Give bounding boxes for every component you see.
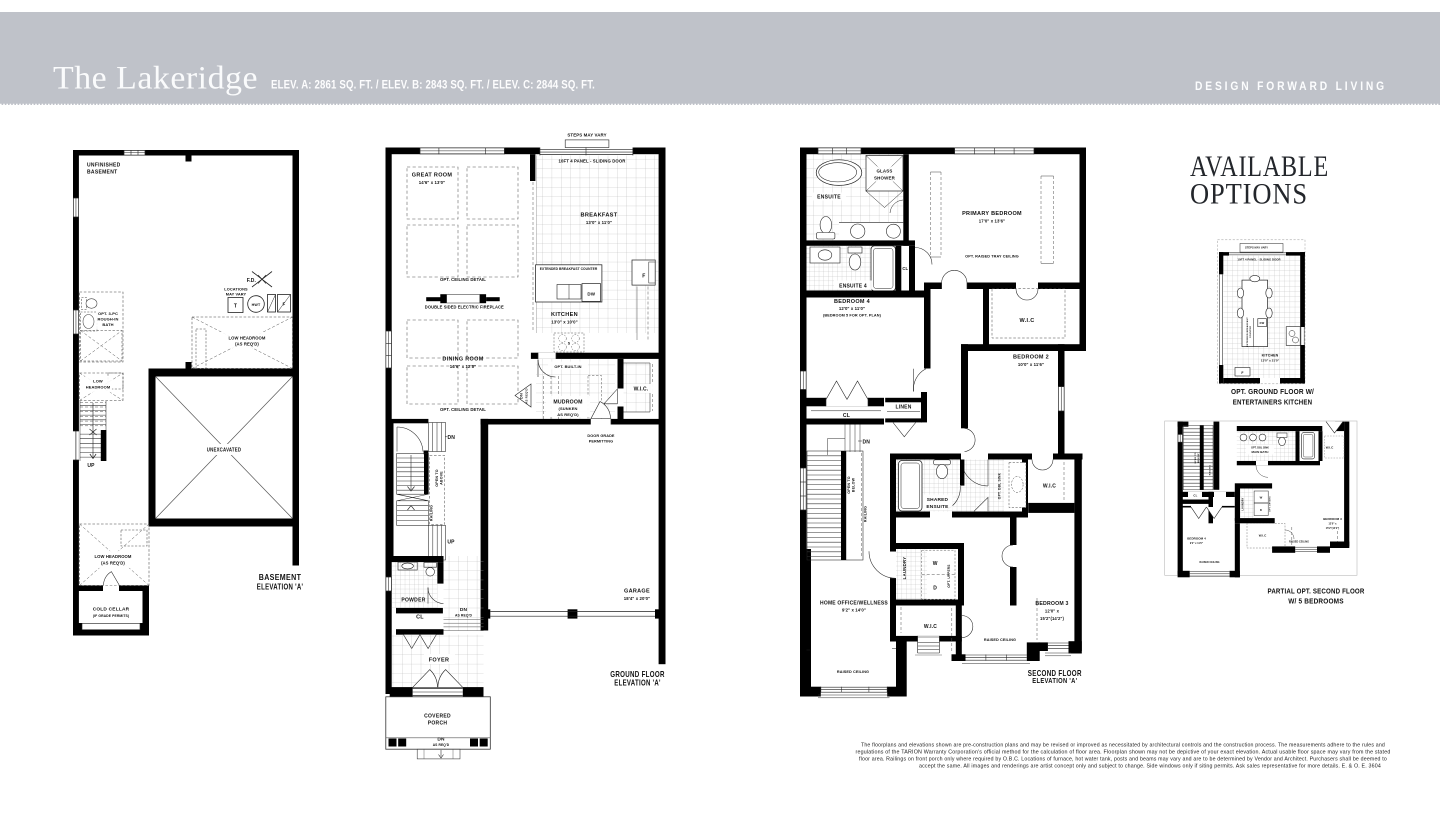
svg-text:DESIGN FORWARD LIVING: DESIGN FORWARD LIVING [1195, 81, 1387, 93]
svg-text:UP: UP [87, 463, 95, 469]
svg-text:ROUGH-IN: ROUGH-IN [97, 317, 118, 322]
svg-text:accept the same. All images an: accept the same. All images and renderin… [919, 764, 1381, 770]
svg-text:W.I.C.: W.I.C. [634, 387, 649, 393]
svg-text:12'0" x: 12'0" x [1045, 609, 1060, 614]
svg-text:STEPS MAY VARY: STEPS MAY VARY [567, 133, 606, 138]
svg-text:GLASS: GLASS [876, 169, 892, 174]
svg-text:13'0" x 11'0": 13'0" x 11'0" [586, 220, 612, 225]
svg-text:ELEV. A: 2861 SQ. FT. / ELEV.: ELEV. A: 2861 SQ. FT. / ELEV. B: 2843 SQ… [271, 80, 595, 92]
svg-text:HWT: HWT [252, 303, 261, 307]
svg-text:OPT. CEILING DETAIL: OPT. CEILING DETAIL [440, 407, 486, 412]
svg-text:F: F [642, 274, 645, 280]
svg-text:LAUNDRY: LAUNDRY [902, 557, 907, 580]
svg-text:POWDER: POWDER [401, 598, 425, 604]
svg-text:CL: CL [902, 266, 908, 271]
svg-text:HOME OFFICE/WELLNESS: HOME OFFICE/WELLNESS [820, 601, 888, 607]
svg-text:RAILING: RAILING [430, 505, 434, 521]
svg-text:MAY VARY: MAY VARY [226, 292, 247, 297]
svg-text:17'0" x 13'6": 17'0" x 13'6" [979, 219, 1006, 224]
svg-text:DW: DW [1260, 321, 1265, 325]
svg-text:OPEN TO: OPEN TO [847, 476, 851, 494]
svg-text:DN: DN [520, 393, 524, 399]
svg-text:OPT. UPPERS: OPT. UPPERS [947, 564, 951, 587]
svg-text:W.I.C: W.I.C [1020, 318, 1035, 324]
svg-text:W.I.C: W.I.C [1326, 446, 1334, 450]
svg-text:DN: DN [460, 607, 468, 613]
svg-text:KITCHEN: KITCHEN [551, 312, 578, 318]
svg-text:DW: DW [587, 292, 595, 297]
svg-text:BEDROOM 3: BEDROOM 3 [1323, 517, 1342, 521]
svg-text:ELEVATION 'A': ELEVATION 'A' [1032, 676, 1077, 685]
svg-text:PARTIAL OPT. SECOND FLOOR: PARTIAL OPT. SECOND FLOOR [1268, 587, 1365, 596]
svg-text:AS REQ'D: AS REQ'D [525, 388, 529, 403]
svg-text:ENTERTAINERS KITCHEN: ENTERTAINERS KITCHEN [1233, 398, 1313, 407]
svg-text:OPT. BUILT-IN: OPT. BUILT-IN [554, 364, 581, 369]
svg-text:CL: CL [1193, 493, 1197, 497]
svg-text:UNEXCAVATED: UNEXCAVATED [207, 448, 242, 454]
svg-text:BEDROOM 4: BEDROOM 4 [1187, 537, 1206, 541]
svg-text:(IF GRADE PERMITS): (IF GRADE PERMITS) [93, 614, 129, 618]
svg-text:W: W [1260, 496, 1263, 500]
svg-text:18'4" x 20'0": 18'4" x 20'0" [624, 596, 651, 601]
svg-text:DOUBLE SIDED ELECTRIC FIREPLAC: DOUBLE SIDED ELECTRIC FIREPLACE [425, 305, 504, 310]
svg-text:UNFINISHED: UNFINISHED [87, 163, 121, 169]
svg-text:LOW: LOW [93, 379, 103, 384]
svg-text:T: T [234, 304, 237, 310]
svg-text:floor area. Railings on front: floor area. Railings on front porch only… [859, 757, 1387, 763]
svg-text:HEADROOM: HEADROOM [86, 385, 111, 390]
svg-text:CL: CL [843, 413, 851, 419]
svg-text:12'0" x 11'0": 12'0" x 11'0" [839, 306, 865, 311]
svg-text:DINING ROOM: DINING ROOM [442, 357, 483, 363]
svg-text:F.D.: F.D. [247, 278, 257, 284]
svg-text:KITCHEN: KITCHEN [1262, 354, 1279, 358]
svg-text:RAILING: RAILING [1209, 465, 1212, 475]
svg-text:RAILING: RAILING [864, 506, 868, 522]
svg-text:9'2" x 14'0": 9'2" x 14'0" [842, 608, 866, 613]
svg-text:ENSUITE 4: ENSUITE 4 [839, 284, 867, 290]
svg-text:BREAKFAST: BREAKFAST [581, 213, 618, 219]
svg-text:(AS REQ'D): (AS REQ'D) [235, 342, 259, 347]
svg-text:CL: CL [416, 615, 424, 621]
svg-text:OPT. RAISED TRAY CEILING: OPT. RAISED TRAY CEILING [965, 255, 1019, 259]
svg-text:LOW HEADROOM: LOW HEADROOM [228, 336, 265, 341]
svg-text:PORCH: PORCH [428, 721, 448, 727]
svg-text:OPTIONS: OPTIONS [1190, 178, 1308, 211]
svg-text:PRIMARY BEDROOM: PRIMARY BEDROOM [962, 211, 1022, 217]
svg-text:ENSUITE: ENSUITE [926, 504, 949, 510]
svg-text:(SUNKEN: (SUNKEN [559, 406, 578, 411]
svg-text:RAISED CEILING: RAISED CEILING [1199, 561, 1219, 564]
svg-text:OPT. 3-PC: OPT. 3-PC [98, 311, 118, 316]
svg-text:14'6" x 12'8": 14'6" x 12'8" [450, 364, 477, 369]
svg-text:W.I.C: W.I.C [1259, 534, 1267, 538]
svg-text:ABOVE: ABOVE [440, 471, 444, 485]
svg-text:BEDROOM 2: BEDROOM 2 [1013, 355, 1049, 361]
svg-text:COLD CELLAR: COLD CELLAR [93, 607, 130, 613]
svg-text:ENSUITE: ENSUITE [817, 195, 841, 201]
svg-text:BELOW: BELOW [1198, 453, 1200, 463]
svg-text:GREAT ROOM: GREAT ROOM [412, 173, 453, 179]
svg-text:OPEN TO: OPEN TO [435, 469, 439, 487]
svg-text:ELEVATION 'A': ELEVATION 'A' [257, 583, 304, 592]
svg-text:OPT. GROUND FLOOR W/: OPT. GROUND FLOOR W/ [1231, 387, 1315, 396]
svg-text:BELOW: BELOW [852, 477, 856, 492]
svg-text:EXTENDED BREAKFAST COUNTER: EXTENDED BREAKFAST COUNTER [540, 267, 598, 271]
svg-text:BATH: BATH [102, 322, 113, 327]
svg-text:13'0" x 21'0": 13'0" x 21'0" [1261, 359, 1280, 363]
svg-text:RAISED CEILING: RAISED CEILING [984, 638, 1016, 642]
svg-text:DOOR GRADE: DOOR GRADE [587, 434, 615, 438]
svg-text:BASEMENT: BASEMENT [87, 170, 117, 176]
svg-text:10FT 4 PANEL - SLIDING DOOR: 10FT 4 PANEL - SLIDING DOOR [1237, 257, 1280, 261]
svg-text:OPT. DBL SINK: OPT. DBL SINK [998, 472, 1002, 499]
svg-text:W/ 5 BEDROOMS: W/ 5 BEDROOMS [1288, 597, 1344, 606]
svg-text:MUDROOM: MUDROOM [553, 400, 582, 406]
svg-text:The Lakeridge: The Lakeridge [53, 61, 258, 97]
svg-text:W: W [933, 561, 938, 567]
svg-text:F: F [283, 302, 286, 307]
svg-text:BEDROOM 4: BEDROOM 4 [834, 299, 871, 305]
svg-text:SHARED: SHARED [927, 497, 949, 503]
svg-text:OPT. DRYERS: OPT. DRYERS [1270, 496, 1272, 512]
svg-text:AS REQ'D: AS REQ'D [455, 614, 473, 618]
svg-text:STEPS MAY VARY: STEPS MAY VARY [1245, 246, 1268, 250]
svg-text:BEDROOM 3: BEDROOM 3 [1035, 601, 1068, 607]
svg-text:COUNTER: COUNTER [1250, 326, 1252, 338]
svg-text:UP: UP [447, 540, 455, 546]
svg-text:LOW HEADROOM: LOW HEADROOM [94, 554, 131, 559]
svg-text:AS REQ'D: AS REQ'D [433, 743, 450, 747]
svg-text:LINEN: LINEN [896, 405, 912, 411]
svg-text:D: D [1260, 508, 1262, 512]
svg-text:regulations of the TARION Warr: regulations of the TARION Warranty Corpo… [856, 750, 1391, 756]
svg-text:DN: DN [437, 737, 445, 743]
svg-text:PERMITTING: PERMITTING [589, 440, 613, 444]
svg-text:10'0" x 11'6": 10'0" x 11'6" [1018, 362, 1044, 367]
svg-text:F: F [1241, 371, 1243, 375]
svg-text:D: D [933, 586, 937, 592]
svg-text:S: S [568, 342, 571, 346]
svg-text:SHOWER: SHOWER [874, 176, 896, 181]
svg-text:FOYER: FOYER [429, 658, 449, 664]
svg-text:ELEVATION 'A': ELEVATION 'A' [614, 678, 661, 687]
svg-text:10FT 4 PANEL - SLIDING DOOR: 10FT 4 PANEL - SLIDING DOOR [558, 158, 626, 163]
svg-text:W.I.C: W.I.C [924, 624, 937, 630]
svg-text:LAUNDRY: LAUNDRY [1242, 497, 1245, 510]
svg-text:(AS REQ'D): (AS REQ'D) [101, 561, 125, 566]
svg-text:COVERED: COVERED [424, 714, 451, 720]
svg-text:EXTENDED BREAKFAST: EXTENDED BREAKFAST [1246, 317, 1249, 347]
svg-text:OPT. CEILING DETAIL: OPT. CEILING DETAIL [440, 277, 486, 282]
svg-text:The floorplans and elevations: The floorplans and elevations shown are … [861, 743, 1385, 749]
svg-text:13'0" x 10'0": 13'0" x 10'0" [551, 320, 578, 325]
svg-text:15'2"(14'2"): 15'2"(14'2") [1326, 527, 1340, 530]
svg-text:DN: DN [863, 440, 871, 446]
svg-text:DN: DN [448, 435, 456, 441]
svg-text:W.I.C: W.I.C [1043, 484, 1056, 490]
svg-text:OPEN TO: OPEN TO [1195, 452, 1197, 463]
svg-text:RAISED CEILING: RAISED CEILING [837, 670, 869, 674]
svg-text:12'0" x: 12'0" x [1328, 523, 1337, 526]
svg-text:14'6" x 13'0": 14'6" x 13'0" [419, 180, 446, 185]
svg-text:GARAGE: GARAGE [624, 589, 650, 595]
svg-text:MAIN BATH: MAIN BATH [1251, 450, 1268, 454]
svg-text:15'2"(14'2"): 15'2"(14'2") [1040, 616, 1064, 621]
svg-text:9'2" x 11'0": 9'2" x 11'0" [1190, 542, 1203, 545]
svg-text:BASEMENT: BASEMENT [259, 573, 302, 582]
svg-text:AS REQ'D): AS REQ'D) [557, 412, 579, 417]
svg-text:(BEDROOM 5 FOR OPT. PLAN): (BEDROOM 5 FOR OPT. PLAN) [823, 314, 882, 318]
